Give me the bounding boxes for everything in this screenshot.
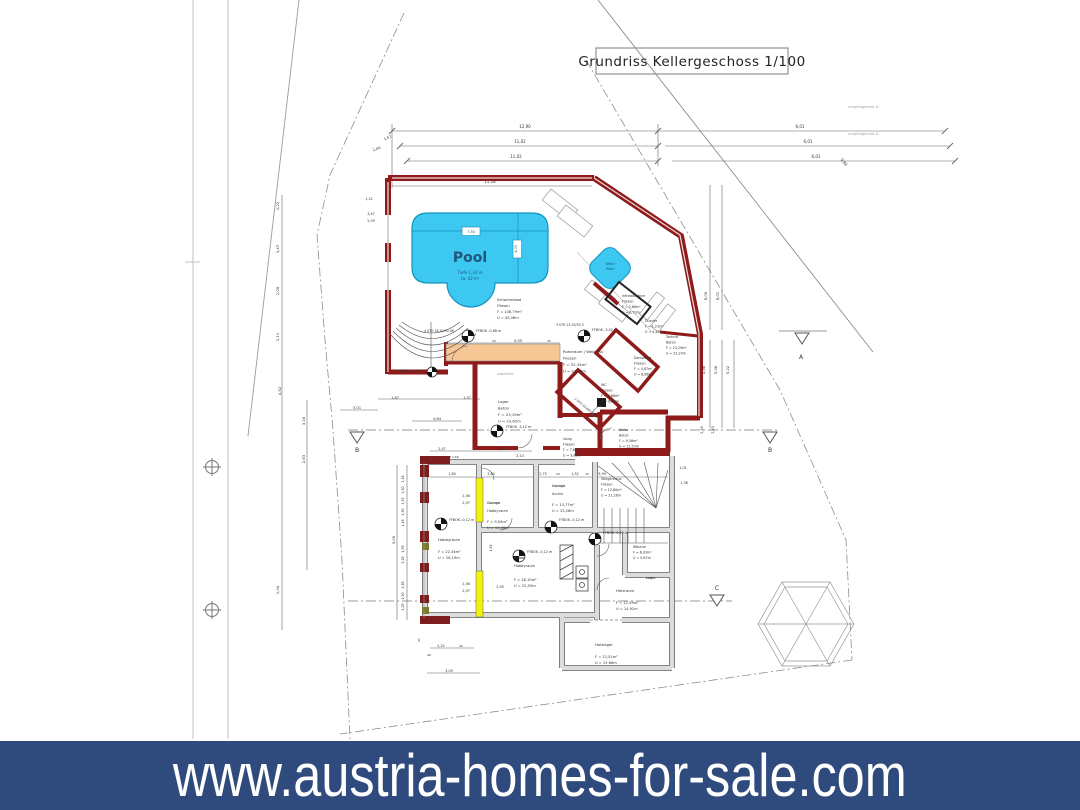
dim: 8,09 <box>703 291 708 300</box>
dim: 1,80 <box>448 472 456 476</box>
room-info-hobbyraum-2: F = 9,04m²U = 10,46m <box>487 520 509 530</box>
stair-note: 4 STH 16,20/30,06 <box>424 329 454 333</box>
dim: 25 <box>556 472 560 476</box>
dim: 2,07 <box>462 589 470 593</box>
dim: 2,36 <box>462 494 470 498</box>
dim: 1,16 <box>401 475 405 482</box>
dim: 1,30 <box>401 508 405 515</box>
room-label-gang: GangFliesenF = 7,62m²U = 9,82m <box>563 437 582 458</box>
dim: 3,99 <box>598 472 606 476</box>
room-label-hobbyraum-2: Hobbyraum <box>487 509 509 513</box>
room-info-heizraum: F = 12,59m²U = 14,92m <box>616 601 639 611</box>
dim: 25 <box>492 339 496 343</box>
dim: 1,52 <box>571 472 579 476</box>
ffbok-label: FFBOK -3,12 m <box>506 425 532 429</box>
dim: 1,29 <box>401 603 405 610</box>
dim: 1,01 <box>679 466 687 470</box>
stair-note: 3 STH 15,30/30,5 <box>556 323 584 327</box>
strike-keller: Keller <box>514 556 525 560</box>
dim: 4,55 <box>514 338 523 343</box>
pool-name: Pool <box>453 250 487 266</box>
note-gelaende: ursprüngliches G. <box>848 132 880 136</box>
dim: 2,07 <box>462 501 470 505</box>
dim: 65 <box>417 638 421 642</box>
dim: 2,09 <box>367 219 375 223</box>
dim: 1,22 <box>365 197 373 201</box>
dim: 1,97 <box>463 396 471 400</box>
dim: 2,75 <box>539 472 547 476</box>
dim: 1,55 <box>489 544 493 551</box>
dim: 3,16 <box>301 416 306 425</box>
dim: 3,01 <box>353 405 362 410</box>
strike-lager: Lager <box>646 576 656 580</box>
boundary-lines <box>185 0 873 740</box>
dim: 1,39 <box>401 545 405 552</box>
dim: 4,84 <box>433 416 442 421</box>
drawing-title: Grundriss Kellergeschoss 1/100 <box>578 54 805 70</box>
dim: 2,12 <box>498 447 506 451</box>
dim: 92 <box>459 644 463 648</box>
dim: 2,22 <box>437 644 445 648</box>
room-label-holzlager: Holzlager <box>595 642 613 647</box>
gray-walls <box>425 456 672 668</box>
dim: 1,57 <box>383 135 392 142</box>
hexagon-gazebo <box>758 582 854 666</box>
dim: 6,01 <box>804 139 813 144</box>
ffbok-label: FFBOK -0,12 m <box>603 531 629 535</box>
room-label-ruheraum: Ruheraum / WellnessFliesenF = 32,34m²U =… <box>563 349 603 374</box>
dim: 1,22 <box>275 201 280 210</box>
room-info-hobbyraum-3: F = 28,10m²U = 22,53m <box>514 578 537 588</box>
room-label-lager: LagerBetonF = 23,19m²U = 23,62m <box>498 399 522 424</box>
dim: 15 <box>585 472 589 476</box>
pool-dim: 7,50 <box>467 230 475 234</box>
ffbok-label: FFBOK -3,07 m <box>398 369 424 373</box>
room-label-hobbyraum-1: Hobbyraum <box>438 537 461 542</box>
dim: 2,45 <box>700 426 704 434</box>
dim: 3,80 <box>487 472 495 476</box>
room-info-hobbyraum-1: F = 22,34m²U = 26,19m <box>438 550 461 560</box>
ffbok-label: FFBOK -0,12 m <box>559 518 585 522</box>
boiler-icons <box>560 545 588 591</box>
note-gelaende: ursprüngliches G. <box>848 105 880 109</box>
room-label-dampfbad: DampfbadFliesenF = 4,87m²U = 8,86m <box>634 356 653 377</box>
dim: 4,52 <box>277 386 282 395</box>
dim: 11,02 <box>514 139 526 144</box>
microtext: unbeheizt <box>497 372 514 376</box>
dim: 1,38 <box>680 481 688 485</box>
dim: 2,63 <box>301 454 306 463</box>
dim: 1,16 <box>401 519 405 526</box>
dim: 2,43 <box>711 426 715 434</box>
section-label-b: B <box>355 447 359 454</box>
dim: 2,09 <box>275 286 280 295</box>
dim: 1,04 <box>275 585 280 594</box>
banner-url[interactable]: www.austria-homes-for-sale.com <box>173 741 907 810</box>
room-label-hobbyraum-3: Hobbyraum <box>514 564 536 568</box>
room-label-keller: KellerBetonF = 9,56m²U = 12,53m <box>619 428 639 449</box>
dim: 46 <box>427 653 431 657</box>
dim: 5,22 <box>725 365 730 374</box>
dim: 9,06 <box>392 535 396 544</box>
ffbok-label: FFBOK -0,12 m <box>527 550 553 554</box>
section-label-a: A <box>799 354 804 361</box>
survey-point-icon <box>203 458 221 619</box>
room-label-stiegenhaus: StiegenhausFliesenF = 12,60m²U = 21,28m <box>601 477 622 498</box>
dim: 3,09 <box>445 669 453 673</box>
pool-info: Tiefe 1,34 mca. 42 m² <box>456 270 482 281</box>
dim: 11,02 <box>510 154 522 159</box>
dim: 6,01 <box>812 154 821 159</box>
room-label-technik: TechnikBetonF = 10,29m²U = 22,24m <box>665 335 687 356</box>
room-label-waesche: WäscheF = 6,03m²U = 9,87m <box>633 545 652 560</box>
pool-dim: 4,00 <box>514 245 518 253</box>
dim: 2,11 <box>275 332 280 341</box>
section-label-c: C <box>715 585 719 592</box>
dim: 2,10 <box>516 454 524 458</box>
room-label-wc: WCFliesenF = 4,68m²U = 8,87m <box>601 383 620 404</box>
dim: 1,56 <box>401 581 405 588</box>
dim: 5,06 <box>713 365 718 374</box>
section-label-b: B <box>768 447 772 454</box>
ffbok-label: FFBOK -3,42 m <box>592 328 618 332</box>
website-banner: www.austria-homes-for-sale.com <box>0 741 1080 810</box>
room-info-archiv: F = 13,77m²U = 15,26m <box>552 503 575 513</box>
dim: 6,01 <box>796 124 805 129</box>
dim: 1,28 <box>401 556 405 563</box>
room-label-whirlpool: WhirlPool <box>605 262 614 271</box>
dim: 1,87 <box>391 396 399 400</box>
room-label-heizraum: Heizraum <box>616 588 635 593</box>
dim: 2,04 <box>372 146 382 153</box>
dim: 8,01 <box>715 291 720 300</box>
ffbok-label: FFBOK -0,12 m <box>449 518 475 522</box>
room-info-holzlager: F = 12,51m²U = 15,66m <box>595 655 618 665</box>
dim: 2,90 <box>496 585 504 589</box>
dim: 2,47 <box>438 447 446 451</box>
strike-garage-2: Garage <box>487 501 501 505</box>
ffbok-label: FFBOK -0,88 m <box>476 329 502 333</box>
dim: 3,47 <box>275 244 280 253</box>
dim: 4,98 <box>701 365 706 374</box>
dim: FPH 1,56 <box>445 455 459 459</box>
dim: 25 <box>547 339 551 343</box>
room-label-archiv: Archiv <box>552 492 564 496</box>
dim: 11,18 <box>484 179 496 184</box>
dim: 1,30 <box>401 592 405 599</box>
dim: 9,96 <box>840 157 850 167</box>
strike-garage-1: Garage <box>552 484 566 488</box>
dim: 12,90 <box>519 124 531 129</box>
dim: 1,30 <box>401 486 405 493</box>
plan-svg: Grundriss Kellergeschoss 1/100 Schwimmba… <box>0 0 1080 741</box>
title-block: Grundriss Kellergeschoss 1/100 <box>578 48 805 74</box>
dim: 2,36 <box>462 582 470 586</box>
dim: 1,55 <box>401 497 405 504</box>
dim: 3,47 <box>367 212 375 216</box>
scanned-floor-plan-page: Grundriss Kellergeschoss 1/100 Schwimmba… <box>0 0 1080 810</box>
room-label-schwimmbad: SchwimmbadFliesenF = 108,79m²U = 45,08m <box>497 298 522 320</box>
